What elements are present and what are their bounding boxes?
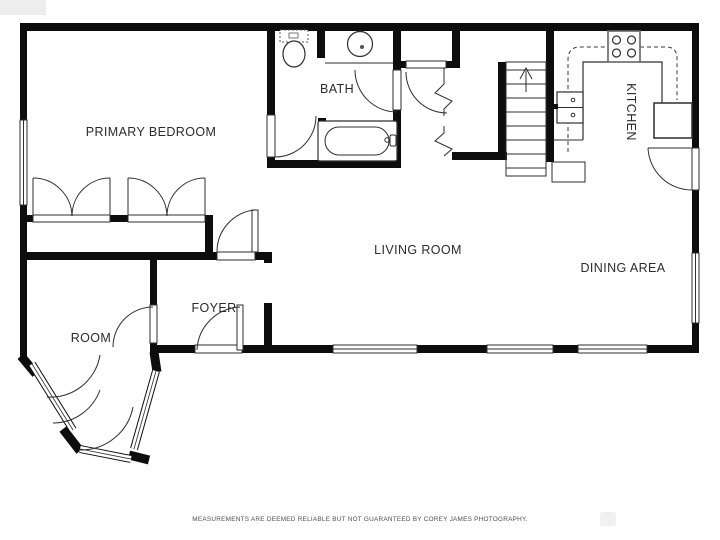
toilet-icon: [280, 30, 308, 67]
stove-icon: [608, 31, 640, 62]
closet-double-doors-icon: [128, 178, 205, 222]
door-swing-icon: [267, 115, 316, 157]
window-icon: [578, 345, 647, 353]
kitchen-sink-icon: [550, 92, 583, 123]
floor-plan-page: PRIMARY BEDROOM BATH KITCHEN LIVING ROOM…: [0, 0, 720, 540]
door-swing-icon: [355, 70, 401, 112]
door-swing-icon: [113, 305, 157, 347]
closet-double-doors-icon: [33, 178, 110, 222]
floor-plan-canvas: PRIMARY BEDROOM BATH KITCHEN LIVING ROOM…: [0, 0, 720, 540]
window-icon: [692, 253, 699, 323]
door-swing-icon: [648, 148, 699, 190]
scan-artifact-top-left: [0, 0, 46, 15]
window-icon: [333, 345, 417, 353]
refrigerator-icon: [654, 103, 692, 138]
window-icon: [487, 345, 553, 353]
bathtub-icon: [318, 121, 397, 161]
watermark-smudge: [600, 512, 616, 526]
label-primary-bedroom: PRIMARY BEDROOM: [86, 125, 217, 139]
label-kitchen: KITCHEN: [624, 83, 638, 141]
label-dining-area: DINING AREA: [581, 261, 666, 275]
disclaimer-text: MEASUREMENTS ARE DEEMED RELIABLE BUT NOT…: [192, 516, 527, 523]
window-icon: [134, 371, 156, 449]
label-room: ROOM: [71, 331, 112, 345]
stairs-up-icon: [506, 62, 546, 176]
windows: [20, 120, 699, 459]
bath-sink-icon: [325, 31, 393, 63]
window-icon: [80, 449, 131, 459]
door-swing-icon: [217, 210, 258, 260]
window-icon: [20, 120, 27, 205]
label-foyer: FOYER: [191, 301, 236, 315]
label-bath: BATH: [320, 82, 354, 96]
label-living-room: LIVING ROOM: [374, 243, 462, 257]
